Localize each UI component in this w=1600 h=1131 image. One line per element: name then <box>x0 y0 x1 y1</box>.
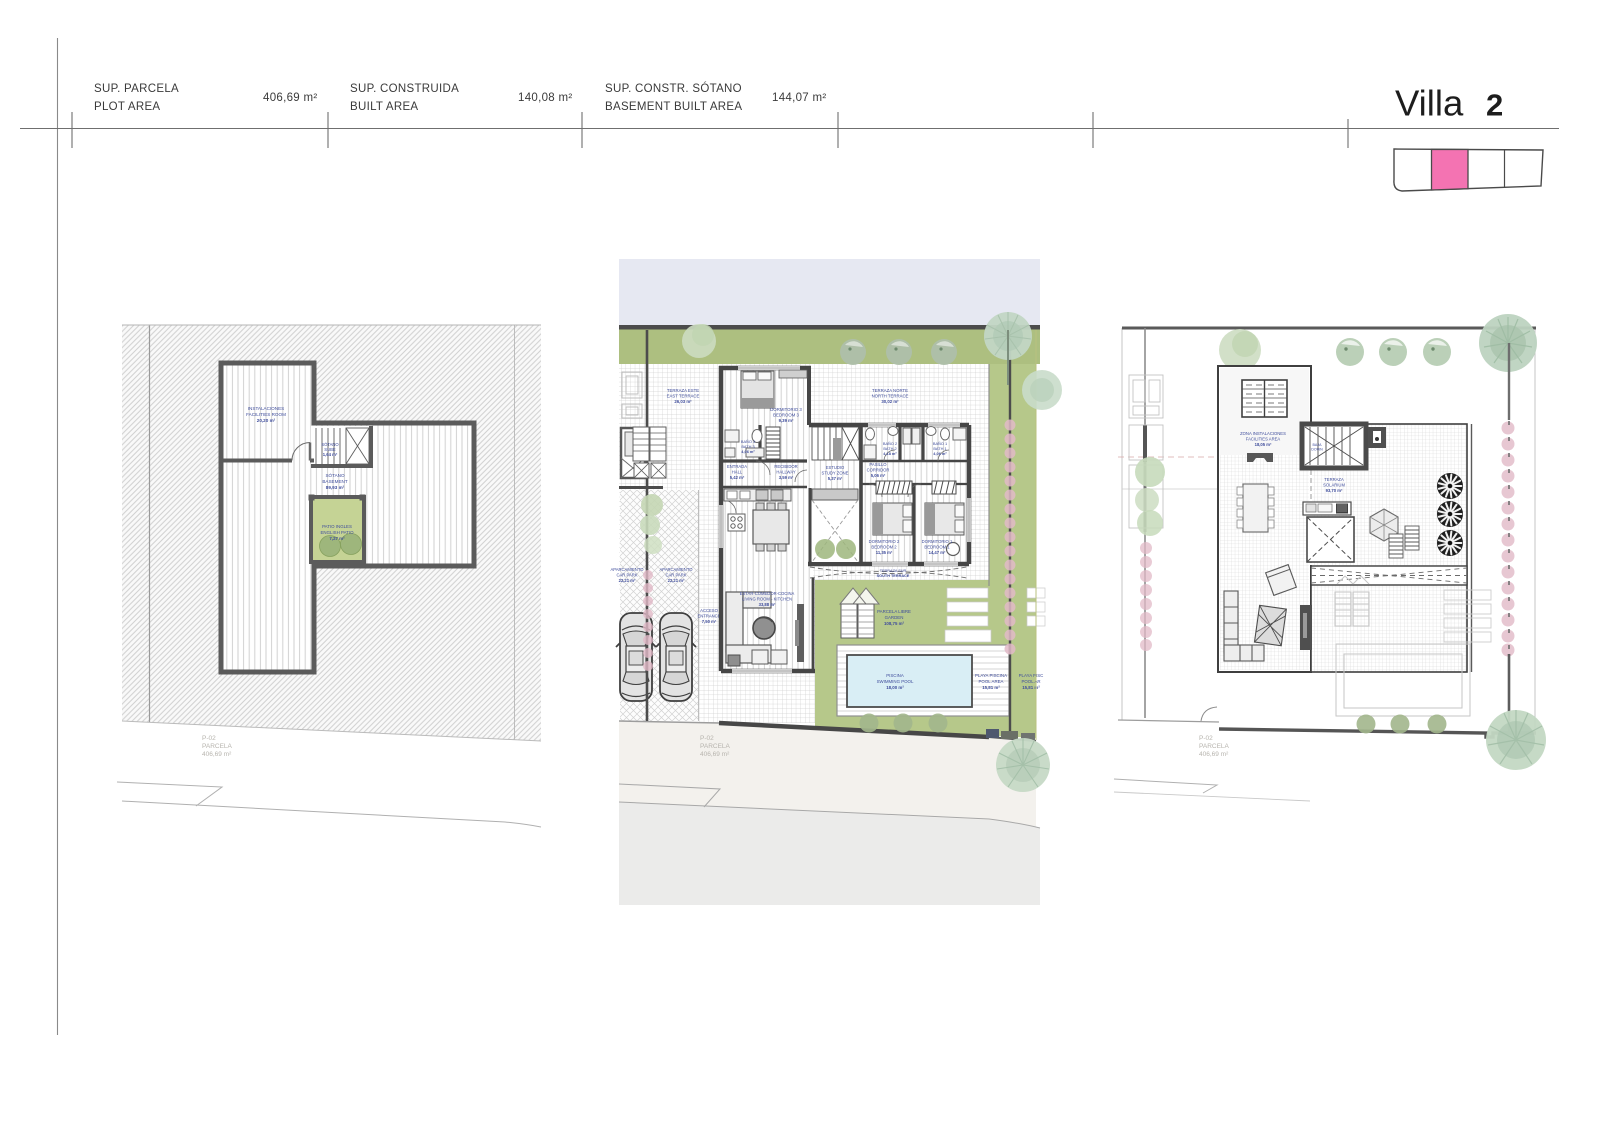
svg-text:1,64 m²: 1,64 m² <box>323 452 338 457</box>
svg-text:7,27 m²: 7,27 m² <box>329 536 345 541</box>
svg-text:30,02 m²: 30,02 m² <box>881 399 899 404</box>
svg-text:BUILT AREA: BUILT AREA <box>350 101 418 113</box>
svg-text:5,37 m²: 5,37 m² <box>828 476 843 481</box>
svg-text:PARCELA LIBRE: PARCELA LIBRE <box>877 609 911 614</box>
svg-text:FACILITIES AREA: FACILITIES AREA <box>1246 437 1281 442</box>
svg-text:PLAYA PISC: PLAYA PISC <box>1019 673 1044 678</box>
svg-text:7,50 m²: 7,50 m² <box>702 619 717 624</box>
svg-text:BEDROOM 1: BEDROOM 1 <box>924 545 950 550</box>
svg-text:DOWN: DOWN <box>1311 448 1323 452</box>
svg-text:SOLARIUM: SOLARIUM <box>1323 483 1345 488</box>
svg-text:406,69 m²: 406,69 m² <box>202 751 232 758</box>
svg-text:PASILLO: PASILLO <box>869 462 887 467</box>
svg-text:15,81 m²: 15,81 m² <box>1022 685 1040 690</box>
svg-text:PISCINA: PISCINA <box>886 673 904 678</box>
svg-text:HALLWAY: HALLWAY <box>776 470 795 475</box>
svg-text:11,35 m²: 11,35 m² <box>876 550 893 555</box>
svg-text:3,59 m²: 3,59 m² <box>779 475 794 480</box>
svg-text:406,69 m²: 406,69 m² <box>1199 751 1229 758</box>
svg-text:ENTRANCE: ENTRANCE <box>697 614 720 619</box>
svg-text:5,42 m²: 5,42 m² <box>730 475 745 480</box>
svg-text:BEDROOM 3: BEDROOM 3 <box>773 413 799 418</box>
svg-text:14,47 m²: 14,47 m² <box>929 550 946 555</box>
svg-text:APARCAMIENTO: APARCAMIENTO <box>610 567 644 572</box>
svg-text:LIVING ROOM - KITCHEN: LIVING ROOM - KITCHEN <box>742 597 792 602</box>
svg-text:P-02: P-02 <box>202 735 216 742</box>
svg-text:SOUTH TERRACE: SOUTH TERRACE <box>877 574 910 578</box>
svg-text:15,81 m²: 15,81 m² <box>982 685 1000 690</box>
svg-text:P-02: P-02 <box>700 735 714 742</box>
svg-text:PLAYA PISCINA: PLAYA PISCINA <box>975 673 1007 678</box>
svg-text:PATIO INGLES: PATIO INGLES <box>322 524 352 529</box>
svg-text:144,07 m²: 144,07 m² <box>772 92 826 104</box>
svg-text:ZONA INSTALACIONES: ZONA INSTALACIONES <box>1240 431 1286 436</box>
svg-text:33,88 m²: 33,88 m² <box>759 602 776 607</box>
svg-text:ACCESO: ACCESO <box>700 608 718 613</box>
svg-text:POOL AREA: POOL AREA <box>979 679 1004 684</box>
svg-text:NORTH TERRACE: NORTH TERRACE <box>872 394 909 399</box>
svg-text:89,93 m²: 89,93 m² <box>326 485 345 490</box>
svg-text:POOL AR: POOL AR <box>1021 679 1040 684</box>
svg-text:4,06 m²: 4,06 m² <box>933 451 947 456</box>
svg-text:SWIMMING POOL: SWIMMING POOL <box>877 679 914 684</box>
svg-text:CAR PARK: CAR PARK <box>665 573 686 578</box>
svg-text:SUP. CONSTR. SÓTANO: SUP. CONSTR. SÓTANO <box>605 82 742 95</box>
svg-text:GARDEN: GARDEN <box>885 615 904 620</box>
svg-text:FACILITIES ROOM: FACILITIES ROOM <box>246 412 286 417</box>
svg-text:SÓTANO: SÓTANO <box>325 472 344 478</box>
svg-text:ENGLISH PATIO: ENGLISH PATIO <box>320 530 354 535</box>
svg-text:ESTUDIO: ESTUDIO <box>826 465 845 470</box>
svg-text:18,05 m²: 18,05 m² <box>1255 442 1272 447</box>
svg-text:TERRAZA SUR: TERRAZA SUR <box>880 569 907 573</box>
svg-text:BEDROOM 2: BEDROOM 2 <box>871 545 897 550</box>
svg-text:BASEMENT BUILT AREA: BASEMENT BUILT AREA <box>605 101 742 113</box>
svg-text:93,70 m²: 93,70 m² <box>1326 488 1343 493</box>
svg-text:CAR PARK: CAR PARK <box>616 573 637 578</box>
svg-text:4,06 m²: 4,06 m² <box>741 449 755 454</box>
svg-text:DORMITORIO 2: DORMITORIO 2 <box>869 539 900 544</box>
svg-text:ENTRADA: ENTRADA <box>727 464 747 469</box>
svg-text:DORMITORIO 1: DORMITORIO 1 <box>922 539 953 544</box>
svg-text:4,18 m²: 4,18 m² <box>883 451 897 456</box>
svg-text:SUP. CONSTRUIDA: SUP. CONSTRUIDA <box>350 83 459 95</box>
svg-text:SUP. PARCELA: SUP. PARCELA <box>94 83 179 95</box>
svg-text:PARCELA: PARCELA <box>1199 743 1230 750</box>
svg-text:RECIBIDOR: RECIBIDOR <box>774 464 797 469</box>
svg-text:EAST TERRACE: EAST TERRACE <box>667 394 700 399</box>
svg-text:5,06 m²: 5,06 m² <box>871 473 886 478</box>
svg-text:CORRIDOR: CORRIDOR <box>867 468 890 473</box>
svg-text:P-02: P-02 <box>1199 735 1213 742</box>
svg-text:DORMITORIO 3: DORMITORIO 3 <box>770 407 802 412</box>
svg-text:9,39 m²: 9,39 m² <box>779 418 794 423</box>
svg-text:HALL: HALL <box>732 470 743 475</box>
svg-text:BASEMENT: BASEMENT <box>322 479 347 484</box>
svg-text:22,21 m²: 22,21 m² <box>668 578 685 583</box>
svg-text:22,21 m²: 22,21 m² <box>619 578 636 583</box>
svg-text:PARCELA: PARCELA <box>202 743 233 750</box>
svg-text:406,69 m²: 406,69 m² <box>263 92 317 104</box>
svg-text:PARCELA: PARCELA <box>700 743 731 750</box>
svg-text:TERRAZA ESTE: TERRAZA ESTE <box>667 388 699 393</box>
svg-text:18,00 m²: 18,00 m² <box>886 685 904 690</box>
svg-text:406,69 m²: 406,69 m² <box>700 751 730 758</box>
svg-text:INSTALACIONES: INSTALACIONES <box>248 406 284 411</box>
svg-text:ESTAR-COMEDOR-COCINA: ESTAR-COMEDOR-COCINA <box>740 591 795 596</box>
svg-text:Villa2: Villa2 <box>1395 83 1503 124</box>
svg-text:STUDY ZONE: STUDY ZONE <box>822 471 849 476</box>
svg-text:140,08 m²: 140,08 m² <box>518 92 572 104</box>
svg-text:TERRAZA: TERRAZA <box>1324 477 1344 482</box>
svg-text:PLOT AREA: PLOT AREA <box>94 101 160 113</box>
svg-text:26,03 m²: 26,03 m² <box>674 399 692 404</box>
svg-text:108,75 m²: 108,75 m² <box>884 621 905 626</box>
svg-text:20,20 m²: 20,20 m² <box>257 418 276 423</box>
svg-text:TERRAZA NORTE: TERRAZA NORTE <box>872 388 908 393</box>
svg-text:APARCAMIENTO: APARCAMIENTO <box>659 567 693 572</box>
svg-text:BAJA: BAJA <box>1313 443 1323 447</box>
